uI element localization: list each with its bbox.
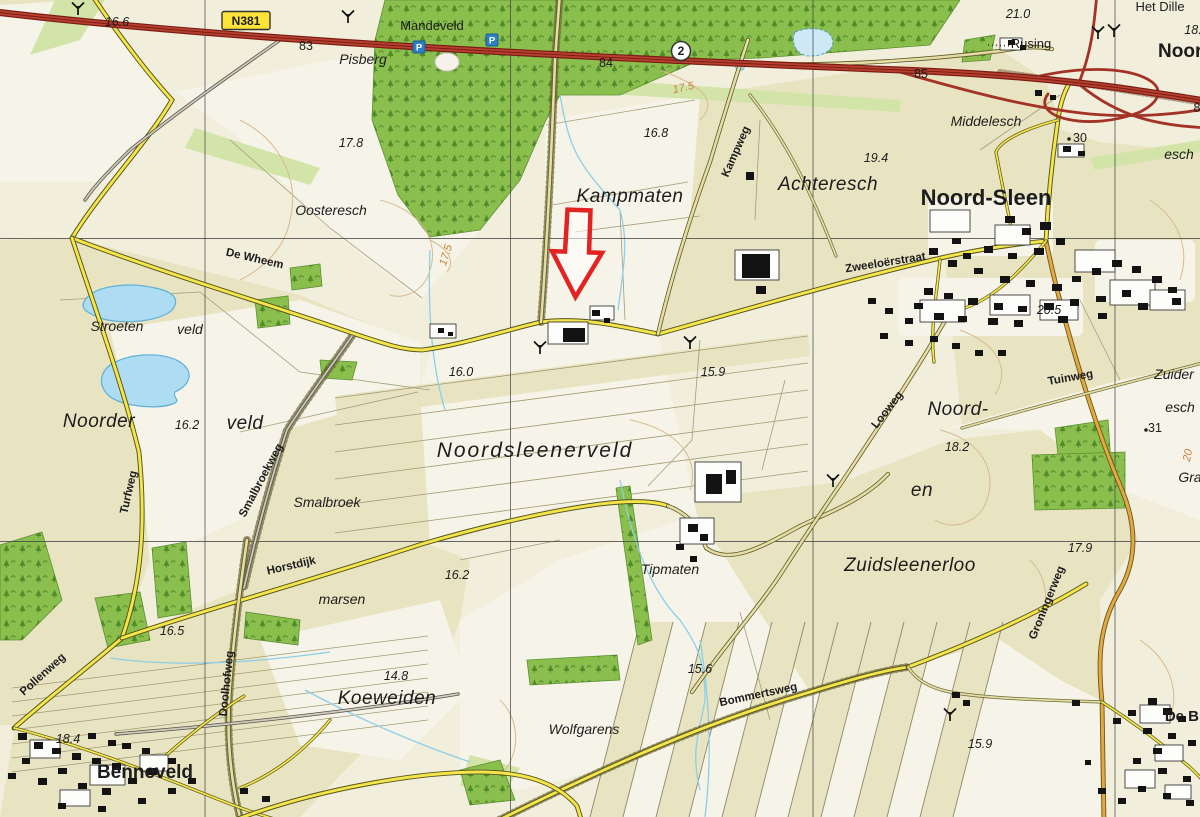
building bbox=[968, 298, 978, 305]
building bbox=[756, 286, 766, 294]
map-label-gra: Gra bbox=[1178, 469, 1200, 485]
building bbox=[1138, 303, 1148, 310]
building bbox=[1172, 298, 1181, 305]
building bbox=[930, 336, 938, 342]
road-badge-2: 2 bbox=[672, 42, 691, 61]
building bbox=[984, 246, 993, 253]
map-label-83: 83 bbox=[299, 39, 313, 53]
building bbox=[88, 733, 96, 739]
building bbox=[1072, 700, 1080, 706]
map-label-17-9: 17.9 bbox=[1068, 541, 1092, 555]
building bbox=[1112, 260, 1122, 267]
building bbox=[994, 303, 1003, 310]
building bbox=[1092, 268, 1101, 275]
building bbox=[1168, 733, 1176, 739]
building bbox=[952, 692, 960, 698]
map-label-smalbroek: Smalbroek bbox=[294, 494, 362, 510]
building bbox=[1085, 760, 1091, 765]
map-label-31: 31 bbox=[1148, 421, 1162, 435]
building bbox=[102, 788, 111, 795]
building bbox=[1128, 710, 1136, 716]
building bbox=[1056, 238, 1065, 245]
road-badge-label: N381 bbox=[232, 14, 261, 28]
map-label-middelesch: Middelesch bbox=[951, 113, 1022, 129]
building bbox=[1118, 798, 1126, 804]
map-label-tipmaten: Tipmaten bbox=[641, 561, 699, 577]
building bbox=[604, 318, 610, 323]
map-label-15-9: 15.9 bbox=[701, 365, 725, 379]
building bbox=[38, 778, 47, 785]
map-label-noord: Noord- bbox=[927, 399, 988, 420]
map-label-achteresch: Achteresch bbox=[777, 174, 878, 195]
map-label-zuider: Zuider bbox=[1153, 366, 1195, 382]
building bbox=[1014, 320, 1023, 327]
building bbox=[706, 474, 722, 494]
parking-icon: P bbox=[413, 41, 425, 54]
building bbox=[1078, 151, 1085, 156]
map-label-oosteresch: Oosteresch bbox=[295, 202, 367, 218]
map-label-18-4: 18.4 bbox=[56, 732, 80, 746]
building bbox=[1158, 768, 1167, 774]
map-label-zuidsleenerloo: Zuidsleenerloo bbox=[843, 555, 976, 576]
building bbox=[905, 318, 913, 324]
map-label-16-2: 16.2 bbox=[445, 568, 469, 582]
building bbox=[1022, 228, 1031, 235]
building bbox=[1040, 222, 1051, 230]
building bbox=[22, 758, 30, 764]
building bbox=[958, 316, 967, 322]
map-label-16-0: 16.0 bbox=[449, 365, 473, 379]
map-canvas: 16.683MandeveldPisberg8417.521.0RusingHe… bbox=[0, 0, 1200, 817]
map-label-14-8: 14.8 bbox=[384, 669, 408, 683]
map-label-17-8: 17.8 bbox=[339, 136, 363, 150]
building bbox=[1168, 287, 1177, 293]
building bbox=[142, 748, 150, 754]
map-label-koeweiden: Koeweiden bbox=[338, 688, 437, 709]
map-label-18: 18. bbox=[1184, 23, 1200, 37]
map-label-veld: veld bbox=[177, 321, 204, 337]
building bbox=[448, 332, 453, 336]
map-label-benneveld: Benneveld bbox=[97, 762, 193, 783]
building bbox=[975, 350, 983, 356]
map-label-20-5: 20.5 bbox=[1036, 303, 1061, 317]
building bbox=[1138, 786, 1146, 792]
map-label-16-2: 16.2 bbox=[175, 418, 199, 432]
building bbox=[58, 768, 67, 774]
map-label-8: 8 bbox=[1194, 101, 1200, 115]
building bbox=[974, 268, 983, 274]
forest-trees-texture bbox=[290, 264, 322, 290]
building bbox=[1098, 788, 1106, 794]
building bbox=[1018, 306, 1027, 312]
map-label-marsen: marsen bbox=[319, 591, 366, 607]
map-label-21-0: 21.0 bbox=[1005, 7, 1030, 21]
building bbox=[8, 773, 16, 779]
building bbox=[988, 318, 998, 325]
building bbox=[72, 753, 81, 760]
map-label-het-dille: Het Dille bbox=[1135, 0, 1184, 14]
building bbox=[122, 743, 131, 749]
building bbox=[1098, 313, 1107, 319]
forest-trees-texture bbox=[152, 542, 192, 618]
building bbox=[240, 788, 248, 794]
building bbox=[726, 470, 736, 484]
building bbox=[1152, 276, 1162, 283]
building bbox=[138, 798, 146, 804]
building bbox=[1183, 776, 1191, 782]
building bbox=[1026, 280, 1035, 287]
building bbox=[34, 742, 43, 749]
building bbox=[1008, 253, 1017, 259]
map-label-wolfgarens: Wolfgarens bbox=[549, 721, 620, 737]
road-badge-label: 2 bbox=[678, 44, 685, 58]
building bbox=[1188, 740, 1196, 746]
building bbox=[1113, 718, 1121, 724]
map-label-veld: veld bbox=[227, 413, 265, 434]
building bbox=[948, 260, 957, 267]
building bbox=[963, 253, 971, 259]
building bbox=[1072, 276, 1081, 282]
building bbox=[998, 350, 1006, 356]
building bbox=[746, 172, 754, 180]
building bbox=[1163, 793, 1171, 799]
building bbox=[1153, 748, 1162, 754]
building bbox=[944, 293, 953, 299]
building bbox=[592, 310, 600, 316]
map-label-esch: esch bbox=[1165, 399, 1195, 415]
map-label-16-8: 16.8 bbox=[644, 126, 668, 140]
map-label-pisberg: Pisberg bbox=[339, 51, 387, 67]
map-label-en: en bbox=[911, 480, 933, 501]
map-label-16-6: 16.6 bbox=[105, 15, 129, 29]
map-label-15-6: 15.6 bbox=[688, 662, 712, 676]
map-label-noord-sleen: Noord-Sleen bbox=[921, 185, 1052, 210]
map-label-noorder: Noorder bbox=[63, 411, 135, 432]
building bbox=[98, 806, 106, 812]
building bbox=[963, 700, 970, 706]
map-label-84: 84 bbox=[599, 56, 613, 70]
building bbox=[700, 534, 708, 541]
map-label-mandeveld: Mandeveld bbox=[400, 18, 464, 33]
map-label-noordsleenerveld: Noordsleenerveld bbox=[437, 439, 634, 462]
map-label-stroeten: Stroeten bbox=[91, 318, 144, 334]
building bbox=[18, 733, 27, 740]
building bbox=[952, 343, 960, 349]
map-label-15-9: 15.9 bbox=[968, 737, 992, 751]
building bbox=[742, 254, 770, 278]
building bbox=[1132, 266, 1141, 273]
building bbox=[1133, 758, 1141, 764]
building bbox=[1000, 276, 1010, 283]
map-label-rusing: Rusing bbox=[1011, 36, 1051, 51]
building bbox=[1096, 296, 1106, 302]
building bbox=[868, 298, 876, 304]
building-block bbox=[1110, 280, 1155, 305]
building bbox=[1052, 284, 1062, 291]
building bbox=[1070, 299, 1079, 306]
building bbox=[58, 803, 66, 809]
building bbox=[914, 303, 923, 309]
building bbox=[1035, 90, 1042, 96]
building bbox=[168, 788, 176, 794]
building bbox=[1005, 216, 1015, 223]
building-block bbox=[1125, 770, 1155, 788]
building bbox=[885, 308, 893, 314]
map-label-kampmaten: Kampmaten bbox=[577, 186, 684, 207]
building bbox=[905, 340, 913, 346]
building bbox=[952, 238, 961, 244]
building bbox=[78, 783, 87, 789]
building bbox=[880, 333, 888, 339]
building bbox=[924, 288, 933, 295]
building bbox=[1063, 146, 1071, 152]
building bbox=[1122, 290, 1131, 297]
map-label-de-bl: De Bl bbox=[1165, 708, 1200, 725]
building bbox=[1148, 698, 1157, 705]
sand-pit bbox=[435, 53, 459, 71]
building bbox=[563, 328, 585, 342]
spot-height-dot bbox=[1067, 137, 1071, 141]
building bbox=[1058, 316, 1068, 323]
building bbox=[1186, 800, 1194, 806]
building bbox=[688, 524, 698, 532]
building bbox=[438, 328, 444, 333]
building bbox=[929, 248, 938, 255]
map-label-18-2: 18.2 bbox=[945, 440, 969, 454]
road-badge-n381: N381 bbox=[222, 12, 270, 30]
building bbox=[262, 796, 270, 802]
map-label-16-5: 16.5 bbox=[160, 624, 184, 638]
building bbox=[1143, 728, 1152, 734]
map-label-noord: Noord bbox=[1158, 41, 1200, 62]
svg-text:P: P bbox=[489, 36, 496, 47]
map-label-esch: esch bbox=[1164, 146, 1194, 162]
svg-text:P: P bbox=[416, 43, 423, 54]
parking-icon: P bbox=[486, 34, 498, 47]
building bbox=[108, 740, 116, 746]
building-block bbox=[930, 210, 970, 232]
forest-trees-texture bbox=[527, 655, 620, 685]
building bbox=[676, 544, 684, 550]
building bbox=[52, 748, 61, 754]
map-label-30: 30 bbox=[1073, 131, 1087, 145]
building bbox=[934, 313, 944, 320]
building bbox=[1034, 248, 1044, 255]
building bbox=[1050, 95, 1056, 100]
topographic-map[interactable]: 16.683MandeveldPisberg8417.521.0RusingHe… bbox=[0, 0, 1200, 817]
map-label-85: 85 bbox=[914, 67, 928, 81]
map-label-19-4: 19.4 bbox=[864, 151, 888, 165]
